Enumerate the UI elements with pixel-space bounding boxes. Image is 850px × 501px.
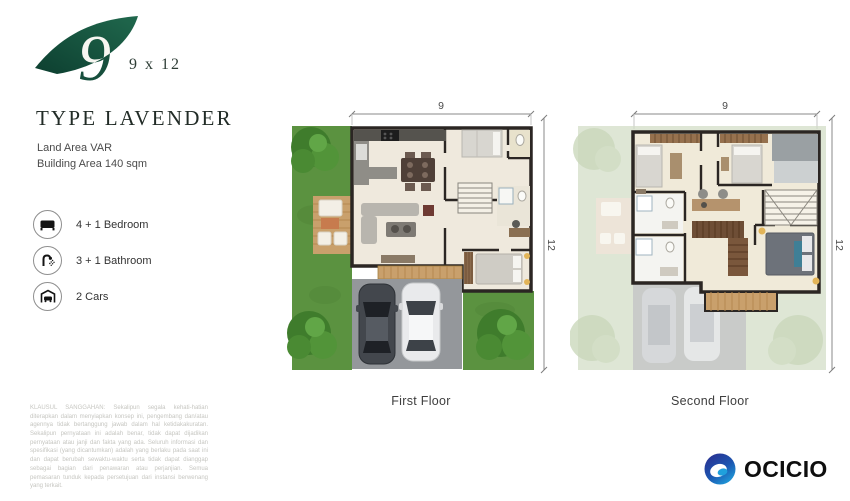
entry-deck [378, 266, 462, 279]
bedroom-1 [462, 130, 502, 157]
brochure-page: 9 9 9 x 12 TYPE LAVENDER Land Area VAR B… [0, 0, 850, 501]
ocicio-brand-name: OCICIO [744, 456, 828, 483]
bed-icon [33, 210, 62, 239]
second-floor-label: Second Floor [570, 394, 850, 408]
feature-bathroom: 3 + 1 Bathroom [33, 247, 152, 274]
ocicio-icon [703, 452, 737, 486]
area-info: Land Area VAR Building Area 140 sqm [37, 140, 147, 172]
feature-list: 4 + 1 Bedroom 3 + 1 Bathroom [33, 211, 152, 319]
feature-cars-label: 2 Cars [76, 291, 108, 303]
building-area: Building Area 140 sqm [37, 156, 147, 172]
car-dark [356, 284, 398, 364]
void-area [774, 161, 818, 183]
second-floor-width-dim: 9 [722, 100, 728, 112]
disclaimer-text: KLAUSUL SANGGAHAN: Sekalipun segala keha… [30, 404, 208, 491]
patio-deck [313, 196, 352, 254]
bathroom-4 [635, 237, 683, 281]
garage-car-icon [33, 282, 62, 311]
first-floor-label: First Floor [285, 394, 557, 408]
second-floor-height-dim: 12 [833, 239, 845, 251]
stairs [765, 190, 817, 225]
bathroom-2 [497, 186, 530, 226]
leaf-logo-graphic: 9 9 9 x 12 [26, 6, 216, 102]
car-white [399, 283, 443, 361]
project-logo: 9 9 9 x 12 [26, 6, 216, 102]
feature-bedroom: 4 + 1 Bedroom [33, 211, 152, 238]
stairs [458, 183, 492, 213]
ocicio-logo: OCICIO [703, 452, 828, 486]
first-floor-width-dim: 9 [438, 100, 444, 112]
first-floor-plan: 9 12 [285, 95, 557, 395]
logo-dimensions: 9 x 12 [129, 56, 181, 73]
bathroom-1 [510, 130, 530, 157]
feature-cars: 2 Cars [33, 283, 152, 310]
feature-bedroom-label: 4 + 1 Bedroom [76, 219, 148, 231]
roof-below [772, 134, 818, 161]
feature-bathroom-label: 3 + 1 Bathroom [76, 255, 152, 267]
land-area: Land Area VAR [37, 140, 147, 156]
type-title: TYPE LAVENDER [36, 106, 233, 131]
bathroom-3 [635, 194, 683, 233]
second-floor-plan: 9 12 [570, 95, 850, 395]
first-floor-height-dim: 12 [545, 239, 557, 251]
balcony-deck [705, 292, 777, 311]
shower-icon [33, 246, 62, 275]
